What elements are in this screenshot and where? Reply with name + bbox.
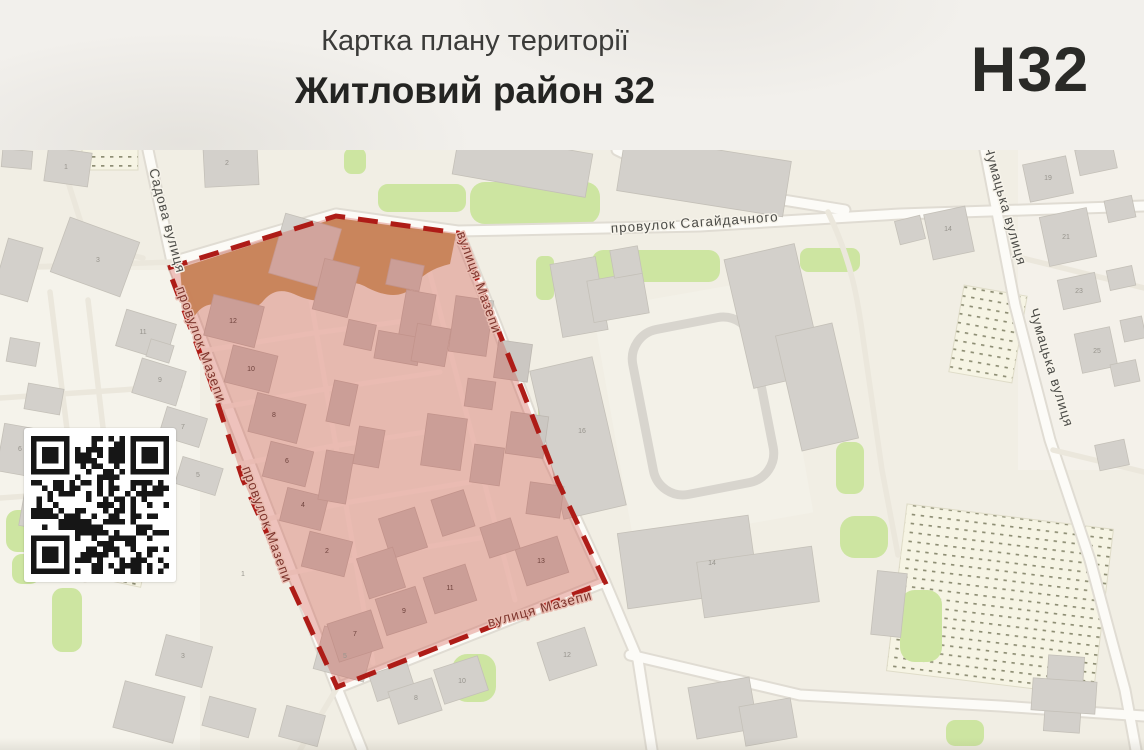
parcel-number: 5	[343, 653, 347, 660]
parcel-number: 23	[1075, 288, 1083, 295]
parcel-number: 4	[301, 502, 305, 509]
parcel-number: 25	[1093, 348, 1101, 355]
title-block: Картка плану території Житловий район 32	[0, 22, 950, 114]
parcel-number: 11	[446, 585, 453, 592]
parcel-number: 9	[158, 377, 162, 384]
parcel-number: 3	[181, 653, 185, 660]
parcel-number: 8	[272, 412, 276, 419]
parcel-number: 14	[708, 560, 716, 567]
parcel-number: 7	[353, 631, 357, 638]
parcel-number: 13	[537, 558, 545, 565]
parcel-number: 12	[563, 652, 571, 659]
card-subtitle: Картка плану території	[0, 22, 950, 60]
parcel-number: 1	[64, 164, 68, 171]
parcel-number: 9	[402, 608, 406, 615]
parcel-number: 8	[414, 695, 418, 702]
parcel-number: 1	[241, 571, 245, 578]
parcel-number: 19	[1044, 175, 1052, 182]
qr-code	[24, 428, 176, 582]
parcel-number: 11	[139, 329, 146, 336]
parcel-number: 10	[458, 678, 466, 685]
parcel-number: 2	[225, 160, 229, 167]
header: Картка плану території Житловий район 32…	[0, 0, 1144, 150]
parcel-number: 6	[285, 458, 289, 465]
bottom-fade	[0, 738, 1144, 750]
parcel-number: 16	[578, 428, 586, 435]
parcel-number: 10	[247, 366, 255, 373]
parcel-number: 12	[229, 318, 237, 325]
parcel-number: 2	[325, 548, 329, 555]
parcel-number: 7	[181, 424, 185, 431]
page-title: Житловий район 32	[0, 68, 950, 114]
parcel-number: 3	[96, 257, 100, 264]
parcel-number: 21	[1062, 234, 1070, 241]
sheet-code: Н32	[960, 34, 1100, 106]
parcel-number: 14	[944, 226, 952, 233]
parcel-number: 5	[196, 472, 200, 479]
parcel-number: 6	[18, 446, 22, 453]
qr-code-pattern	[31, 436, 169, 574]
